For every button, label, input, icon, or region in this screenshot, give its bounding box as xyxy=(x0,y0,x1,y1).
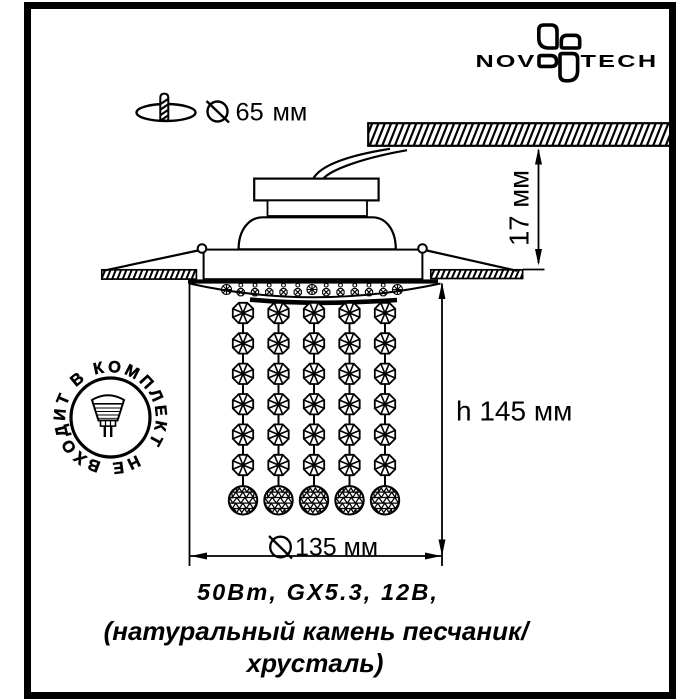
svg-text:мм: мм xyxy=(273,99,308,127)
svg-text:h 145 мм: h 145 мм xyxy=(456,396,572,427)
svg-text:хрусталь): хрусталь) xyxy=(245,648,384,678)
svg-text:(натуральный камень песчаник/: (натуральный камень песчаник/ xyxy=(104,616,532,646)
svg-text:TECH: TECH xyxy=(580,51,658,71)
svg-text:50Вm, GX5.3, 12В,: 50Вm, GX5.3, 12В, xyxy=(197,579,439,605)
svg-text:17 мм: 17 мм xyxy=(504,170,535,246)
svg-text:135 мм: 135 мм xyxy=(295,534,378,562)
svg-text:NOV: NOV xyxy=(476,51,537,71)
svg-text:65: 65 xyxy=(236,99,264,127)
